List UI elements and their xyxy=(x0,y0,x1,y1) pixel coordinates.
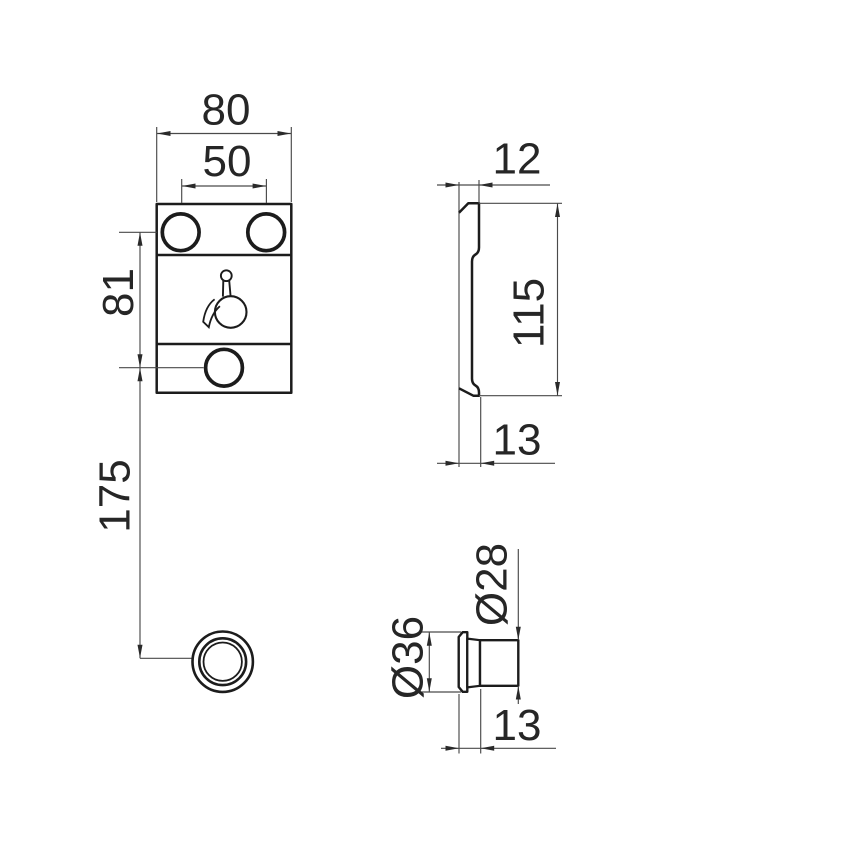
dim-plate-thickness-top: 12 xyxy=(493,134,542,183)
knob-front-view xyxy=(193,632,253,692)
dim-plate-height: 115 xyxy=(504,278,553,348)
plate-side-view xyxy=(459,182,479,467)
knob-flange-circle xyxy=(193,632,253,692)
dim-plate-width: 80 xyxy=(202,85,251,134)
plate-profile xyxy=(459,203,479,395)
dim-plate-thickness-bottom: 13 xyxy=(493,415,542,464)
knob-side-view xyxy=(459,632,519,692)
dim-knob-diameter: Ø28 xyxy=(467,543,516,626)
dim-holes-to-knob-hole: 81 xyxy=(94,268,143,317)
drawing-canvas: 80 50 81 175 12 115 xyxy=(0,0,850,850)
dim-knob-protrusion: 13 xyxy=(493,701,542,750)
dim-flange-diameter: Ø36 xyxy=(383,616,432,699)
dim-hole-spacing: 50 xyxy=(203,137,252,186)
knob-barrel-profile xyxy=(480,640,518,686)
dim-knob-hole-to-control: 175 xyxy=(90,459,139,532)
technical-drawing-sheet: 80 50 81 175 12 115 xyxy=(0,0,850,850)
knob-flange-profile xyxy=(459,632,468,692)
side-view-dimensions: 12 115 13 xyxy=(437,134,562,467)
plate-front-view xyxy=(157,204,292,393)
knob-collar-profile xyxy=(467,639,480,688)
